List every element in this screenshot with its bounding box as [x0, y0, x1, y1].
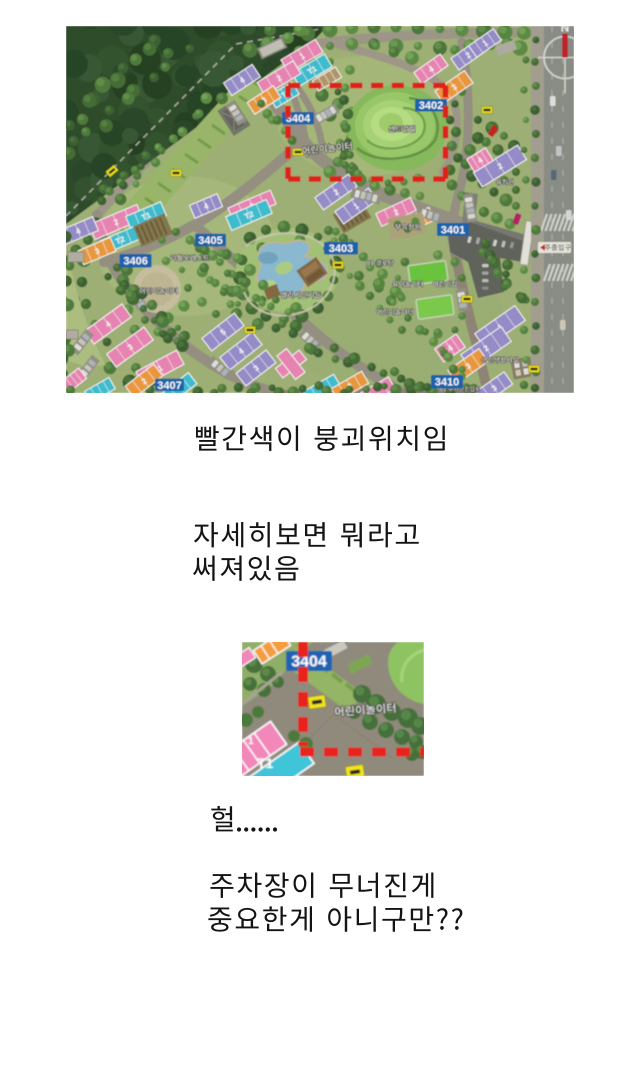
svg-text:1: 1: [248, 736, 254, 747]
svg-text:3404: 3404: [291, 654, 327, 671]
svg-text:T1: T1: [257, 755, 274, 771]
